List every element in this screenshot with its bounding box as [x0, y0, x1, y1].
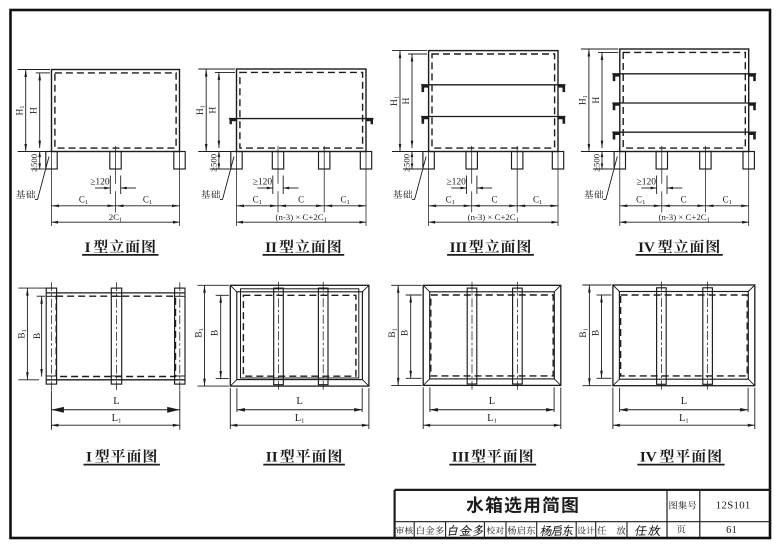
svg-text:L: L [113, 396, 119, 407]
svg-text:≥120: ≥120 [446, 177, 466, 187]
svg-text:I: I [85, 239, 91, 256]
svg-text:IV: IV [638, 239, 655, 256]
svg-text:II: II [265, 239, 277, 256]
svg-text:(n-3) × C+2C1: (n-3) × C+2C1 [659, 212, 710, 224]
svg-text:L: L [296, 396, 302, 407]
svg-text:I: I [86, 449, 92, 466]
svg-text:II: II [266, 449, 278, 466]
svg-text:(n-3) × C+2C1: (n-3) × C+2C1 [468, 212, 519, 224]
svg-text:B: B [211, 330, 221, 336]
svg-text:III: III [450, 239, 468, 256]
svg-text:C: C [681, 195, 687, 205]
svg-text:61: 61 [726, 524, 737, 536]
svg-text:H: H [592, 97, 602, 104]
svg-text:B: B [591, 330, 601, 336]
svg-text:≥500: ≥500 [591, 153, 601, 172]
svg-text:≥500: ≥500 [401, 153, 411, 172]
svg-text:L: L [489, 396, 495, 407]
svg-text:12S101: 12S101 [716, 499, 751, 511]
svg-text:III: III [452, 449, 470, 466]
svg-text:≥120: ≥120 [637, 177, 657, 187]
svg-text:(n-3) × C+2C1: (n-3) × C+2C1 [276, 212, 327, 224]
svg-text:≥120: ≥120 [253, 177, 273, 187]
svg-text:≥120: ≥120 [90, 177, 110, 187]
svg-text:C: C [298, 195, 304, 205]
svg-text:B: B [33, 333, 43, 339]
svg-text:H: H [402, 97, 412, 104]
svg-text:B: B [401, 330, 411, 336]
svg-text:H: H [30, 107, 40, 114]
svg-text:C: C [491, 195, 497, 205]
svg-text:L: L [681, 396, 687, 407]
svg-text:≥500: ≥500 [29, 153, 39, 172]
svg-text:≥500: ≥500 [208, 153, 218, 172]
svg-text:IV: IV [640, 449, 657, 466]
svg-text:H: H [209, 107, 219, 114]
